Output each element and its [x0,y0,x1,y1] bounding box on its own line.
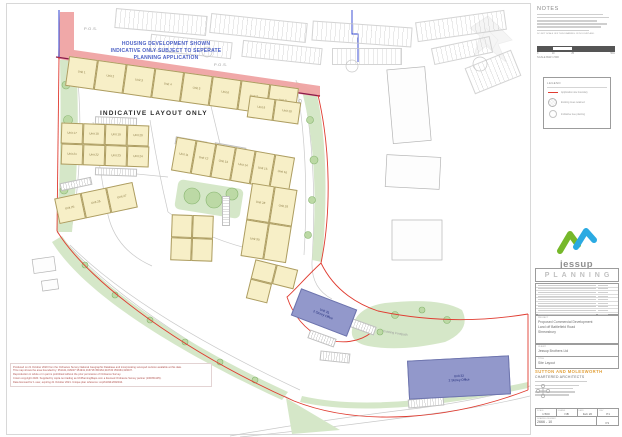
os-disclaimer-text: Produced on 21 October 2020 from the Ord… [10,363,212,387]
existing-terrace-row [332,48,402,65]
housing-unit: Unit 9 [247,95,276,120]
architects-type: CHARTERED ARCHITECTS [535,375,617,379]
office-unit: Unit 322 Storey Office [407,355,511,399]
project-line: Shrewsbury [538,330,616,334]
client-label: CLIENT [538,346,618,348]
legend-box: LEGEND Application site boundary Existin… [543,77,611,129]
legend-label: Existing trees retained [561,101,585,104]
housing-notice-text: HOUSING DEVELOPMENT SHOWN INDICATIVE ONL… [86,41,246,61]
project-box: PROJECT Proposed Commercial Development … [535,315,619,344]
project-line: Land off Battlefield Road [538,325,616,329]
jessup-swoosh-icon [554,228,600,254]
housing-unit: Unit 24 [127,146,150,168]
notes-heading: NOTES [537,6,615,12]
housing-unit: Unit 21 [61,143,84,165]
housing-unit-group: Unit 17Unit 18Unit 19Unit 20 [61,122,150,146]
scale-bar-caption: SCALE BAR 1:500 [537,56,615,59]
legend-item: Application site boundary [547,91,607,94]
scale-number: 50m [610,52,615,55]
drawing-rev-cell: P1 [597,417,618,425]
scale-bar: 0 10 25 50m SCALE BAR 1:500 [537,46,615,59]
project-label: PROJECT [538,317,618,319]
pos-label: P.O.S. [84,26,98,31]
housing-unit [171,214,193,238]
scale-bar-segment [572,47,614,51]
housing-unit: Unit 2 [94,60,127,94]
housing-unit: Unit 4 [151,68,184,102]
proposed-tree-icon [547,110,558,118]
housing-unit-group [170,214,214,261]
housing-unit: Unit 22 [83,144,106,166]
jessup-logo: jessup [533,228,620,273]
architects-emblem-icon [535,383,551,399]
notice-line: INDICATIVE ONLY SUBJECT TO SEPERATE [86,48,246,55]
housing-unit-group: Unit 21Unit 22Unit 23Unit 24 [61,143,150,167]
legend-item: Existing trees retained [547,98,607,107]
revision-table [535,283,619,315]
housing-unit: Unit 6 [209,76,242,110]
drawing-sheet: Unit 1Unit 2Unit 3Unit 4Unit 5Unit 6Unit… [0,0,622,437]
legend-label: Indicative tree planting [561,113,585,116]
scale-number: 10 [552,52,555,55]
title-label: TITLE [538,358,618,360]
planning-status-box: PLANNING [535,268,619,282]
scale-bar-segment [538,47,553,51]
housing-unit: Unit 27 [106,182,137,213]
scale-number: 0 [537,52,538,55]
housing-unit [272,265,298,290]
title-value: Site Layout [538,361,616,365]
housing-unit: Unit 18 [83,123,106,145]
housing-unit: Unit 10 [272,99,301,124]
architects-firm-name: SUTTON AND MOLESWORTH [535,369,617,374]
legend-item: Indicative tree planting [547,110,607,118]
parking-bays [222,196,230,226]
notice-line: HOUSING DEVELOPMENT SHOWN [86,41,246,48]
pos-label: P.O.S. [214,62,228,67]
drawing-info-table: SCALE 1:500 DRAWN NB DATE Feb 20 REV P1 [535,408,619,426]
notes-text-lines [537,14,615,32]
project-line: Proposed Commercial Development [538,320,616,324]
date-cell: DATE Feb 20 [578,409,599,416]
parking-bays [95,167,137,176]
rev-cell: REV P1 [598,409,618,416]
housing-unit [192,215,214,239]
existing-tree-icon [547,98,558,107]
notes-section: NOTES DO NOT SCALE OFF THIS DRAWING. IF … [537,6,615,35]
drawing-title-box: TITLE Site Layout [535,356,619,369]
indicative-layout-label: INDICATIVE LAYOUT ONLY [100,110,208,117]
architects-block: SUTTON AND MOLESWORTH CHARTERED ARCHITEC… [535,369,617,397]
housing-unit: Unit 23 [105,145,128,167]
housing-unit: Unit 5 [180,72,213,106]
housing-unit: Unit 20 [127,125,150,147]
notice-line: PLANNING APPLICATION [86,55,246,62]
legend-label: Application site boundary [561,91,588,94]
housing-unit: Unit 19 [105,124,128,146]
disclaimer-line: Data licensed for 1 user, expiring 21 Oc… [13,381,209,385]
scale-number: 25 [571,52,574,55]
drawing-number-cell: DRAWING NUMBER 2666 - 10 [536,417,597,425]
housing-unit: Unit 3 [122,64,155,98]
drawn-cell: DRAWN NB [557,409,578,416]
do-not-scale-note: DO NOT SCALE OFF THIS DRAWING. IF IN DOU… [537,33,615,35]
boundary-line-icon [547,92,558,93]
scale-cell: SCALE 1:500 [536,409,557,416]
housing-unit: Unit 17 [61,122,84,144]
housing-unit [191,238,213,262]
scale-bar-segment [553,47,572,51]
housing-unit [170,237,192,261]
legend-title: LEGEND [547,81,610,85]
client-value: Jessup Brothers Ltd [538,349,616,353]
title-block: NOTES DO NOT SCALE OFF THIS DRAWING. IF … [533,0,620,437]
